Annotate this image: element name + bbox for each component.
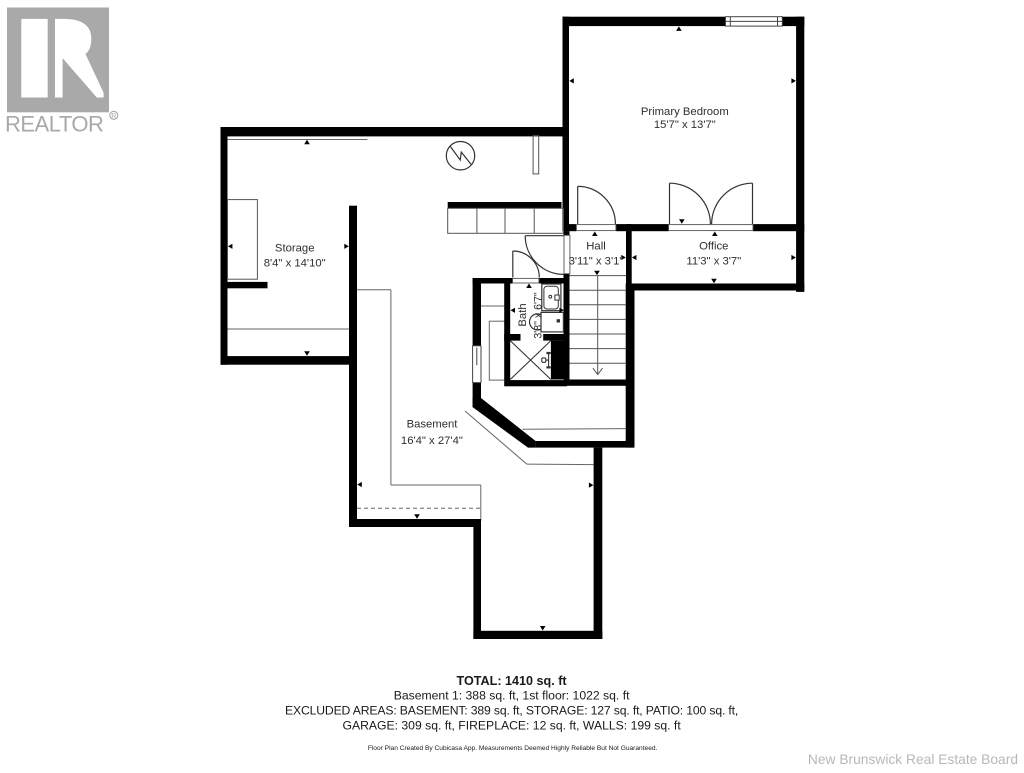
svg-text:8'4" x 14'10": 8'4" x 14'10" (264, 257, 326, 269)
svg-text:Office: Office (699, 240, 728, 252)
svg-text:R: R (111, 113, 116, 120)
svg-text:GARAGE: 309 sq. ft, FIREPLACE:: GARAGE: 309 sq. ft, FIREPLACE: 12 sq. ft… (342, 719, 681, 733)
svg-text:15'7" x 13'7": 15'7" x 13'7" (654, 119, 716, 131)
svg-text:TOTAL: 1410 sq. ft: TOTAL: 1410 sq. ft (457, 674, 568, 688)
svg-text:3'8" x 6'7": 3'8" x 6'7" (533, 292, 545, 339)
svg-text:Primary Bedroom: Primary Bedroom (641, 106, 729, 118)
svg-text:3'11" x 3'1": 3'11" x 3'1" (569, 255, 624, 267)
svg-text:11'3" x 3'7": 11'3" x 3'7" (686, 255, 741, 267)
svg-text:Hall: Hall (586, 240, 605, 252)
svg-text:REALTOR: REALTOR (5, 112, 103, 137)
svg-text:EXCLUDED AREAS: BASEMENT: 389: EXCLUDED AREAS: BASEMENT: 389 sq. ft, ST… (285, 703, 738, 717)
svg-text:Bath: Bath (517, 303, 529, 326)
svg-text:16'4" x 27'4": 16'4" x 27'4" (401, 435, 463, 447)
svg-text:Basement 1: 388 sq. ft, 1st fl: Basement 1: 388 sq. ft, 1st floor: 1022 … (394, 689, 630, 703)
svg-text:Floor Plan Created By Cubicasa: Floor Plan Created By Cubicasa App. Meas… (368, 745, 658, 752)
svg-text:Storage: Storage (275, 242, 315, 254)
svg-text:Basement: Basement (407, 419, 459, 431)
svg-text:New Brunswick Real Estate Boar: New Brunswick Real Estate Board (808, 752, 1018, 767)
